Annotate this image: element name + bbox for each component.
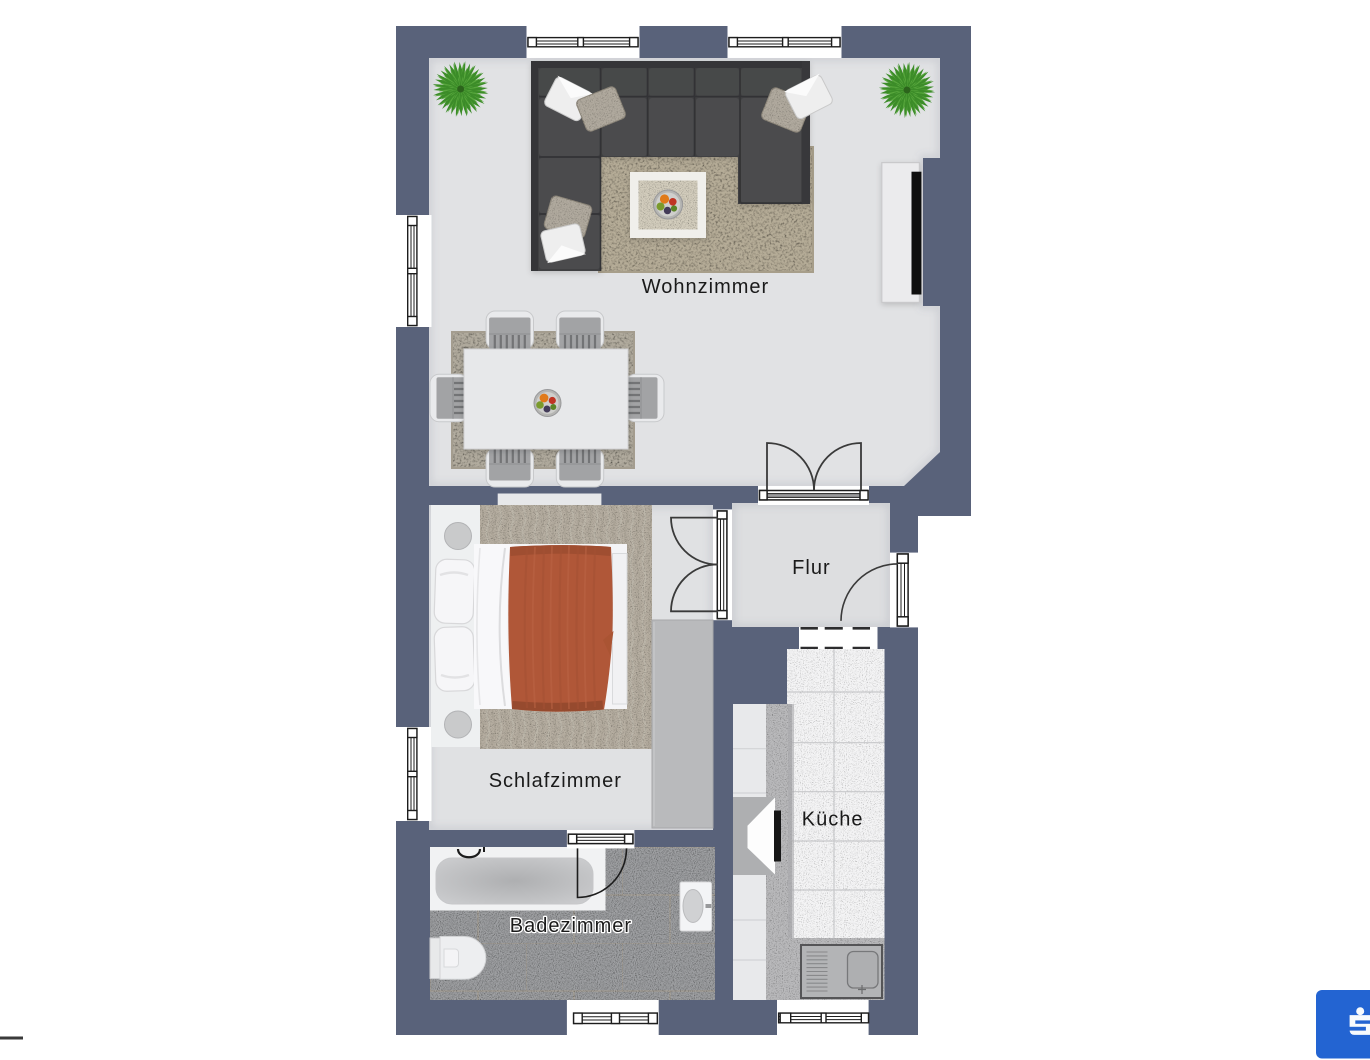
svg-text:Küche: Küche xyxy=(802,809,864,831)
svg-text:Wohnzimmer: Wohnzimmer xyxy=(642,276,769,298)
svg-text:Flur: Flur xyxy=(792,557,830,579)
svg-text:Badezimmer: Badezimmer xyxy=(510,915,632,937)
svg-text:Schlafzimmer: Schlafzimmer xyxy=(489,770,622,792)
